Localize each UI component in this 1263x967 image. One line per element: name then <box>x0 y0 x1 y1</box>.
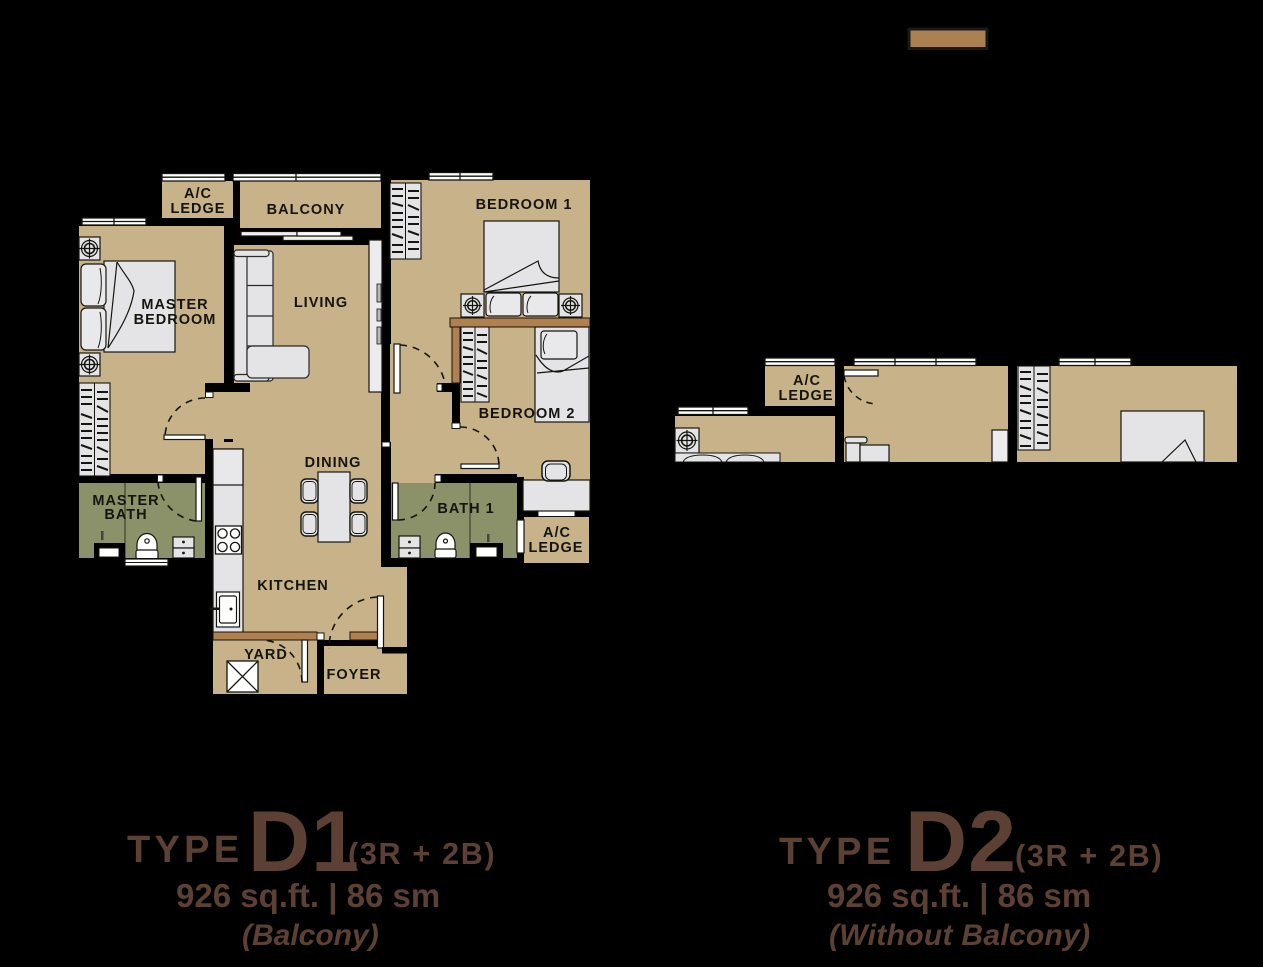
svg-text:BEDROOM 1: BEDROOM 1 <box>476 197 573 213</box>
svg-text:(Without Balcony): (Without Balcony) <box>829 919 1090 952</box>
svg-text:A/C: A/C <box>184 186 212 202</box>
svg-text:DINING: DINING <box>305 455 362 471</box>
svg-text:926 sq.ft. | 86 sm: 926 sq.ft. | 86 sm <box>176 877 440 914</box>
svg-text:A/C: A/C <box>543 525 571 541</box>
svg-text:(3R + 2B): (3R + 2B) <box>1015 839 1163 873</box>
svg-text:TYPE: TYPE <box>779 831 895 873</box>
svg-text:926 sq.ft. | 86 sm: 926 sq.ft. | 86 sm <box>827 877 1091 914</box>
svg-text:LEDGE: LEDGE <box>529 540 584 556</box>
svg-text:LEDGE: LEDGE <box>779 388 834 404</box>
svg-text:TYPE: TYPE <box>127 829 243 871</box>
svg-text:LIVING: LIVING <box>294 295 348 311</box>
svg-text:A/C: A/C <box>793 373 821 389</box>
svg-text:BATH 1: BATH 1 <box>437 501 494 517</box>
svg-text:D2: D2 <box>905 794 1017 890</box>
svg-text:KITCHEN: KITCHEN <box>257 578 328 594</box>
svg-text:YARD: YARD <box>244 647 288 663</box>
svg-text:(Balcony): (Balcony) <box>242 919 379 952</box>
svg-text:(3R + 2B): (3R + 2B) <box>348 837 496 871</box>
svg-text:BATH: BATH <box>104 507 147 523</box>
svg-text:BEDROOM 2: BEDROOM 2 <box>479 406 576 422</box>
svg-text:D1: D1 <box>248 794 360 890</box>
svg-text:BEDROOM: BEDROOM <box>134 312 217 328</box>
svg-text:FOYER: FOYER <box>327 667 382 683</box>
svg-text:BALCONY: BALCONY <box>267 202 346 218</box>
svg-text:MASTER: MASTER <box>141 297 208 313</box>
svg-text:LEDGE: LEDGE <box>171 201 226 217</box>
